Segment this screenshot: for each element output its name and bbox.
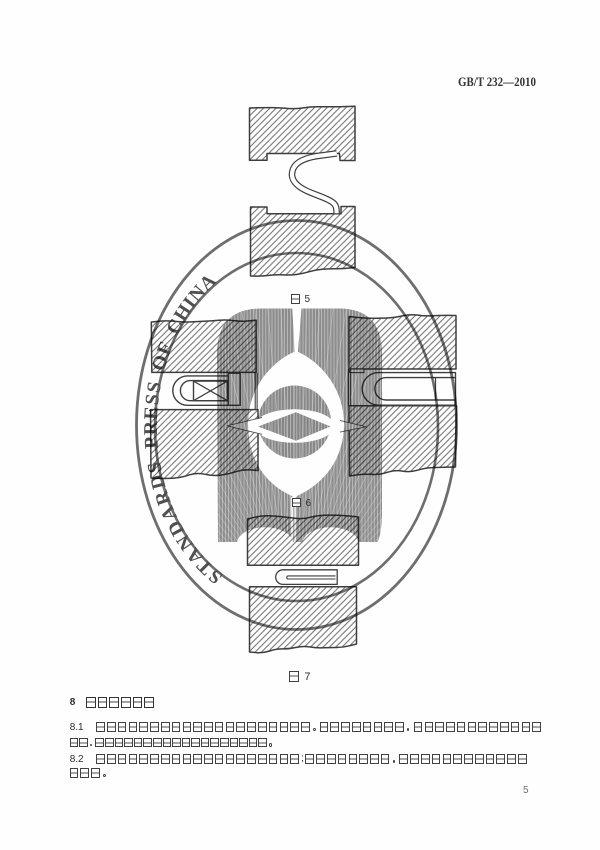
- svg-text:GB/T 232—2010: GB/T 232—2010: [458, 75, 536, 89]
